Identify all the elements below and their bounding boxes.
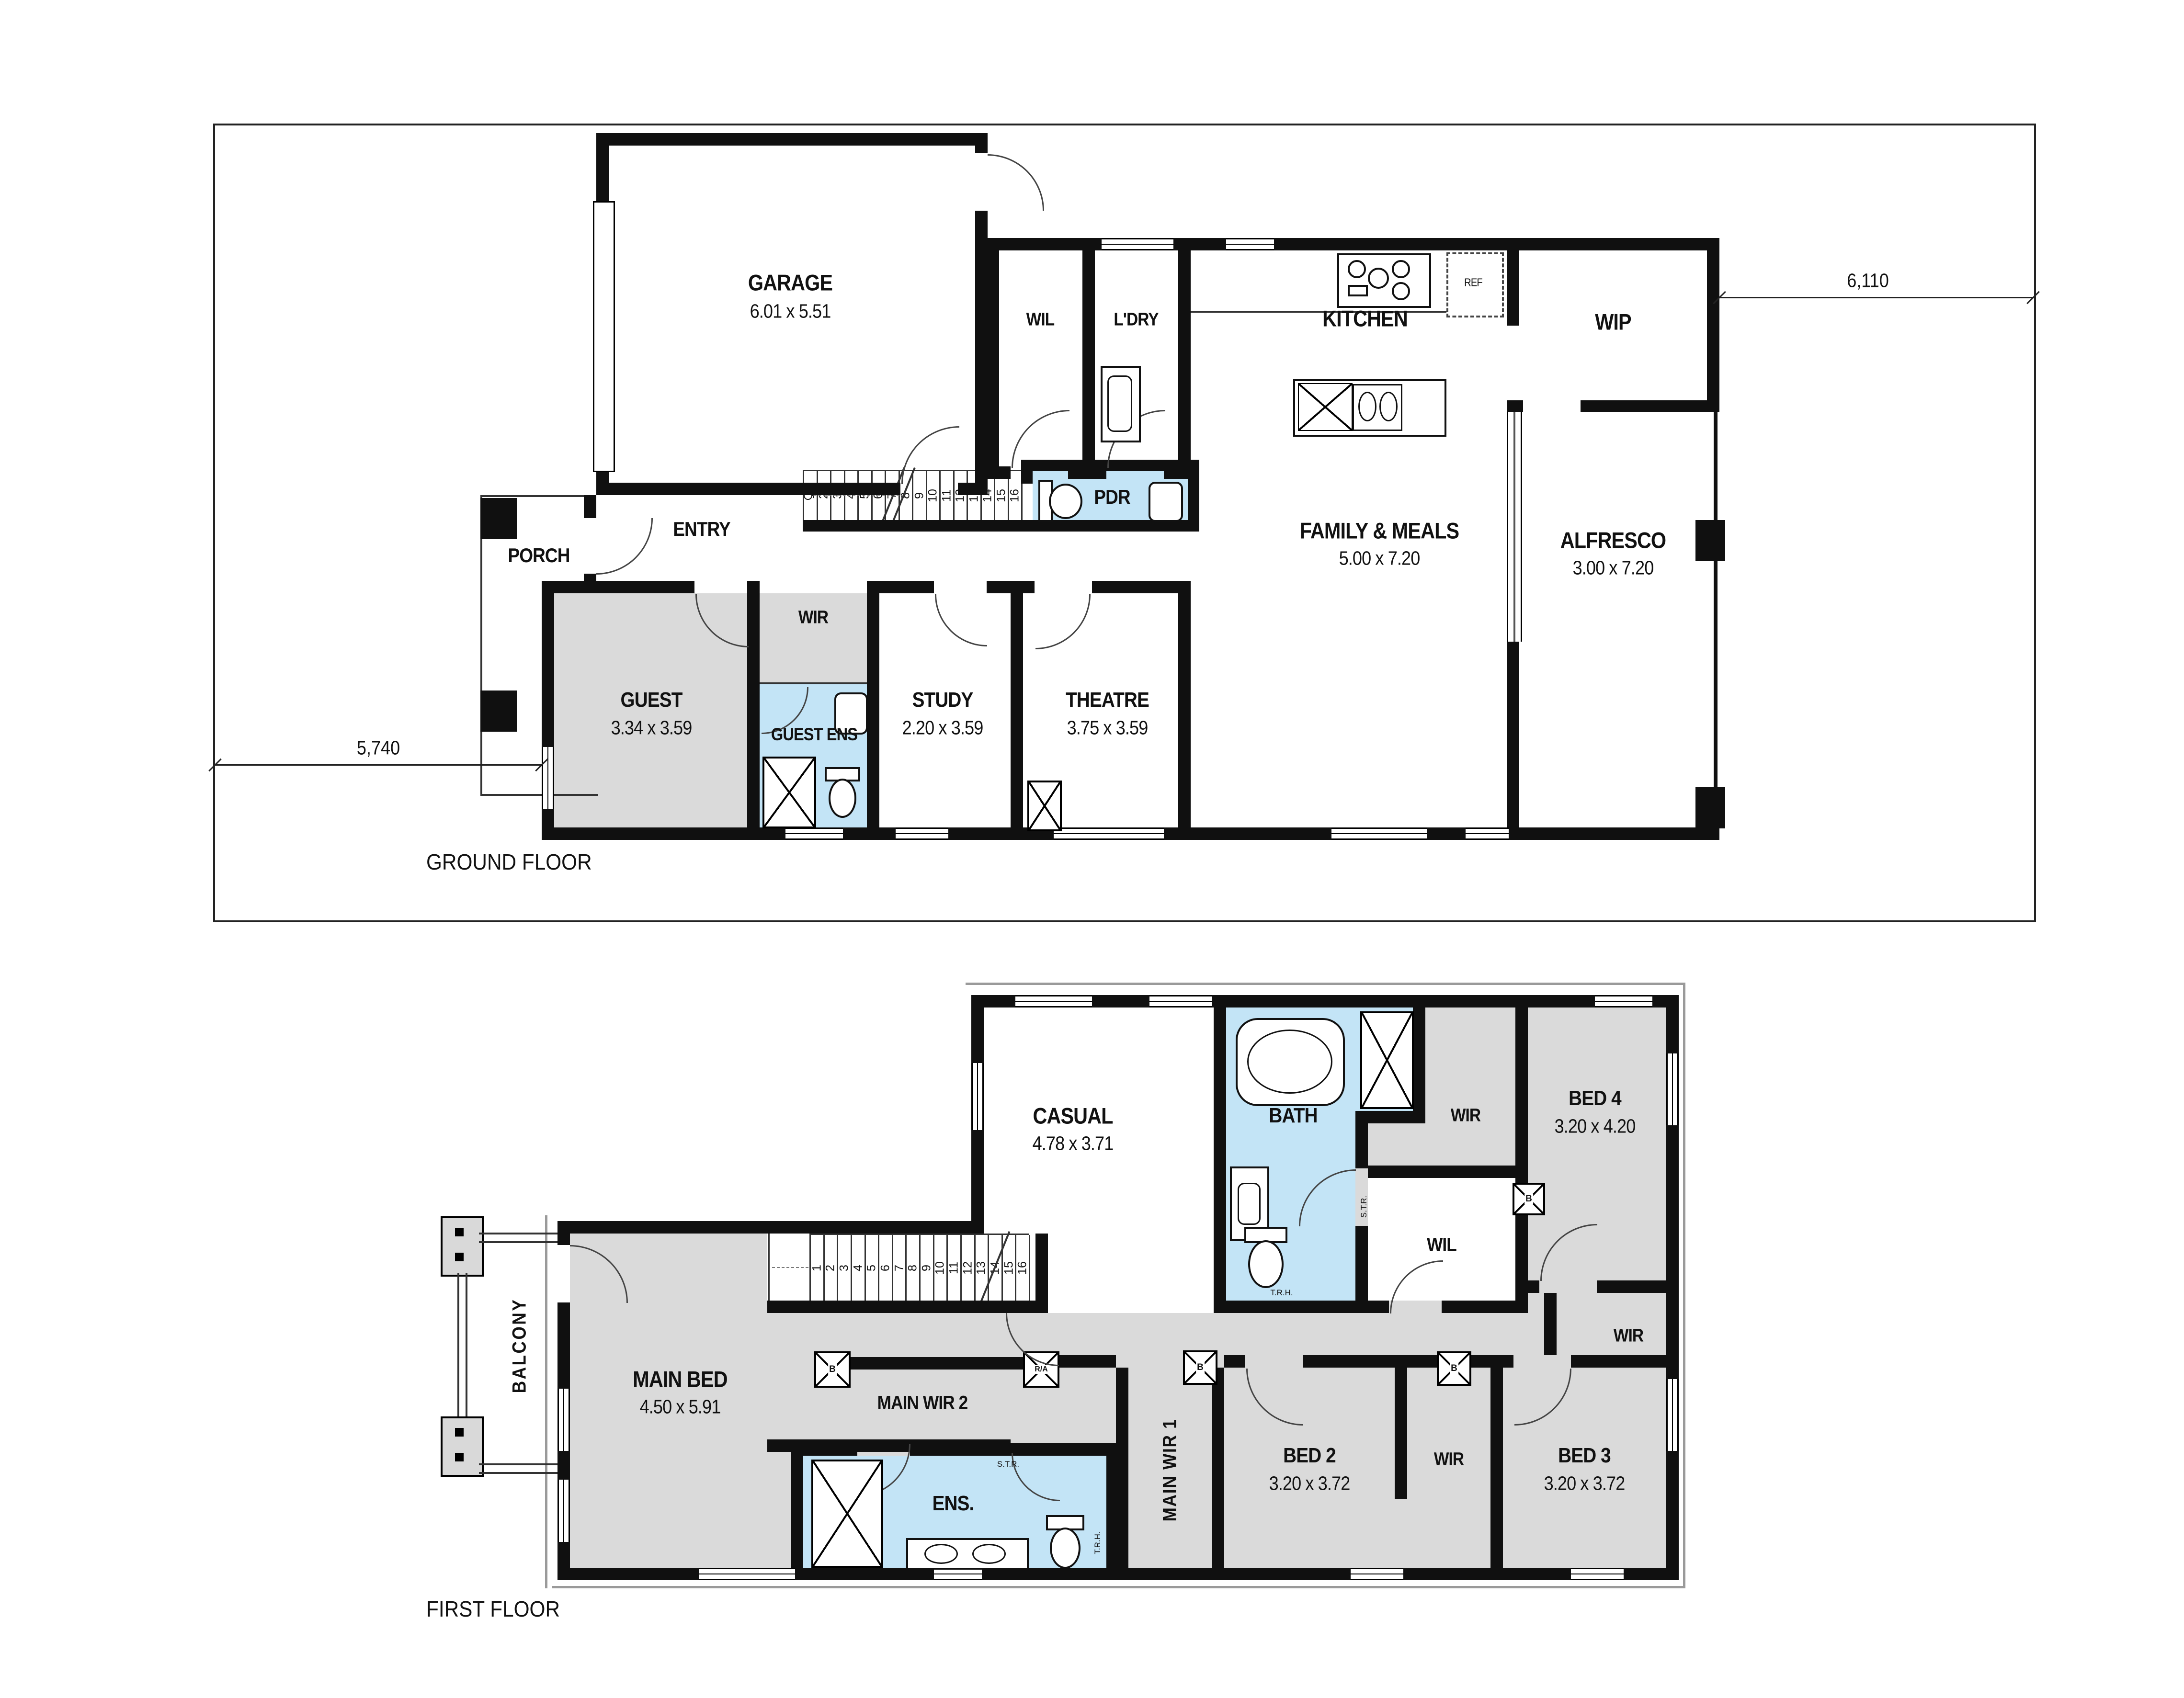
stair-tread: 2 [817, 471, 830, 520]
stair-number: 16 [1016, 1261, 1030, 1275]
stair-tread: 12 [960, 1235, 974, 1301]
stair-landing-line [768, 1234, 770, 1301]
dimension-front: 5,740 [357, 737, 400, 759]
stair-number: 9 [912, 492, 926, 499]
wall [1303, 1355, 1437, 1368]
wall [596, 133, 988, 146]
stair-number: 6 [878, 1265, 892, 1271]
ens-vanity [906, 1538, 1029, 1570]
wall [1490, 1368, 1503, 1568]
stair-number: 11 [947, 1262, 961, 1274]
window [1102, 238, 1173, 250]
window [1666, 1379, 1679, 1451]
room-label-wip: WIP [1595, 309, 1631, 335]
str-label-ens: S.T.R. [997, 1460, 1019, 1469]
guest-ens-toilet [829, 779, 856, 818]
stair-number: 9 [920, 1265, 933, 1271]
wall [1507, 250, 1519, 326]
wall [1544, 1293, 1557, 1355]
stair-tread: 10 [933, 1235, 947, 1301]
window [557, 1389, 570, 1451]
balcony-rail [457, 1273, 459, 1416]
stair-number: 16 [1008, 489, 1022, 502]
floor-title-first: FIRST FLOOR [426, 1596, 560, 1622]
stair-tread: 11 [946, 1235, 960, 1301]
room-label-alfresco: ALFRESCO [1560, 527, 1666, 554]
duct-label: B [828, 1364, 837, 1375]
stair-number: 10 [926, 489, 940, 502]
stair-number: 2 [824, 1265, 838, 1271]
room-label-main-wir2: MAIN WIR 2 [877, 1392, 968, 1414]
stair-tread: 6 [871, 471, 885, 520]
room-label-wir-mid: WIR [1434, 1449, 1464, 1470]
wall [791, 1443, 803, 1568]
room-label-guest-ens: GUEST ENS [771, 724, 857, 745]
wall [975, 133, 988, 153]
trh-label-ens: T.R.H. [1093, 1531, 1103, 1554]
wall [747, 593, 760, 827]
duct-box: B [1183, 1350, 1217, 1385]
room-label-wir-top: WIR [1451, 1106, 1480, 1126]
dimension-line-front [215, 764, 542, 766]
stair-tread: 3 [837, 1235, 851, 1301]
wall [1707, 250, 1719, 400]
staircase-first: 12345678910111213141516 [809, 1235, 1030, 1301]
wall [1212, 1368, 1224, 1568]
duct-box: B [1437, 1351, 1471, 1386]
wall [1214, 995, 1226, 1313]
room-label-theatre: THEATRE [1066, 688, 1149, 712]
guest-ens-shower [762, 757, 816, 828]
stair-landing-dash [772, 1267, 808, 1268]
wall [1355, 1226, 1368, 1301]
porch-outline [480, 794, 598, 796]
stair-tread: 5 [864, 1235, 878, 1301]
room-label-garage: GARAGE [748, 270, 832, 296]
room-label-porch: PORCH [508, 544, 569, 567]
balcony-rail [479, 1463, 557, 1465]
wall [1092, 581, 1191, 593]
window [1226, 238, 1274, 250]
wall [1368, 1166, 1515, 1178]
window [971, 1063, 984, 1130]
porch-pillar [480, 498, 517, 539]
ens-shower [811, 1460, 883, 1568]
wall [1597, 1280, 1666, 1293]
wall [1368, 1301, 1389, 1313]
room-label-wir-right: WIR [1614, 1326, 1643, 1347]
eave-line [552, 1586, 1685, 1588]
room-size-guest: 3.34 x 3.59 [611, 717, 692, 739]
wall [988, 466, 1011, 479]
room-label-main-wir1: MAIN WIR 1 [1160, 1418, 1181, 1521]
wall [1116, 1368, 1128, 1568]
floor-plan-page: 12345678910111213141516 [0, 0, 2184, 1698]
window [557, 1480, 570, 1542]
stair-number: 4 [851, 1265, 865, 1271]
room-label-wil: WIL [1026, 310, 1055, 330]
bath-toilet [1248, 1240, 1284, 1288]
stair-tread: 7 [892, 1235, 906, 1301]
wall [1507, 400, 1523, 412]
stair-tread: 9 [919, 1235, 933, 1301]
room-size-bed4: 3.20 x 4.20 [1555, 1115, 1636, 1138]
window [1666, 1053, 1679, 1125]
room-label-family: FAMILY & MEALS [1300, 518, 1459, 544]
wall [1058, 1355, 1116, 1368]
window [1466, 827, 1509, 840]
wall [958, 483, 975, 495]
duct-box: B [814, 1351, 851, 1388]
stair-tread: 4 [851, 1235, 864, 1301]
floor-title-ground: GROUND FLOOR [426, 849, 592, 875]
duct-label: B [1196, 1362, 1205, 1373]
wall [1011, 581, 1023, 840]
window [1331, 827, 1427, 840]
dimension-line-side [1719, 297, 2033, 298]
alfresco-edge [1714, 400, 1718, 840]
room-size-alfresco: 3.00 x 7.20 [1573, 557, 1654, 579]
alfresco-pillar [1695, 787, 1725, 828]
room-label-guest-wir: WIR [798, 608, 828, 628]
trh-label-bath: T.R.H. [1270, 1288, 1293, 1298]
balcony-post [441, 1416, 484, 1477]
stair-tread: 5 [857, 471, 871, 520]
wall [1082, 250, 1095, 479]
duct-label: B [1450, 1363, 1458, 1374]
room-size-garage: 6.01 x 5.51 [750, 300, 831, 323]
wall [879, 581, 934, 593]
stair-number: 10 [933, 1261, 947, 1275]
room-label-wil-first: WIL [1427, 1234, 1456, 1256]
stair-number: 7 [892, 1265, 906, 1271]
balcony-rail [466, 1273, 467, 1416]
wall [1442, 1301, 1515, 1313]
wall [1413, 1007, 1425, 1111]
room-size-family: 5.00 x 7.20 [1339, 547, 1420, 570]
balcony-rail [479, 1241, 557, 1243]
eave-line [1683, 983, 1685, 1587]
window [896, 827, 948, 840]
wall [747, 581, 760, 593]
window [1595, 995, 1652, 1007]
window [542, 747, 554, 809]
return-air-label: R/A [1034, 1365, 1049, 1374]
fridge-label: REF [1464, 276, 1482, 289]
stair-number: 13 [975, 1261, 989, 1275]
room-label-balcony: BALCONY [509, 1298, 531, 1393]
bath-shower [1360, 1011, 1414, 1109]
room-label-entry: ENTRY [673, 518, 730, 541]
cooktop [1337, 253, 1431, 308]
room-label-bed2: BED 2 [1283, 1444, 1336, 1468]
room-label-casual: CASUAL [1033, 1103, 1113, 1129]
window [699, 1568, 795, 1580]
room-label-pdr: PDR [1094, 486, 1130, 509]
wall [975, 211, 988, 495]
room-size-study: 2.20 x 3.59 [902, 717, 983, 739]
wall [1515, 1007, 1528, 1313]
robe-line [760, 682, 867, 684]
room-size-main-bed: 4.50 x 5.91 [640, 1396, 721, 1418]
structural-pier [1027, 781, 1062, 831]
wall [803, 520, 1199, 532]
porch-outline [480, 495, 596, 497]
stair-tread: 2 [823, 1235, 837, 1301]
stair-number: 11 [940, 489, 954, 502]
wall [1571, 1355, 1666, 1368]
stair-tread: 4 [844, 471, 858, 520]
stair-number: 1 [810, 1265, 824, 1271]
stair-number: 5 [865, 1265, 879, 1271]
bathtub [1236, 1018, 1345, 1106]
stair-number: 3 [838, 1265, 852, 1271]
room-size-bed2: 3.20 x 3.72 [1269, 1472, 1350, 1495]
stair-number: 15 [1002, 1261, 1016, 1275]
room-label-main-bed: MAIN BED [633, 1366, 727, 1392]
balcony-post [441, 1216, 484, 1277]
wall [1224, 1355, 1245, 1368]
window [785, 827, 843, 840]
stair-number: 12 [961, 1261, 975, 1275]
wall [1035, 1234, 1048, 1313]
pdr-basin [1149, 482, 1183, 522]
eave-line [966, 983, 1685, 985]
duct-label: B [1524, 1194, 1533, 1204]
stair-number: 15 [994, 489, 1008, 502]
room-label-ldry: L'DRY [1114, 310, 1158, 330]
wall [1178, 250, 1191, 479]
stair-tread: 6 [878, 1235, 892, 1301]
stair-tread: 16 [1015, 1235, 1029, 1301]
wall [542, 581, 694, 593]
str-label-bath: S.T.R. [1359, 1196, 1369, 1218]
wall [584, 495, 596, 518]
window [1015, 995, 1092, 1007]
kitchen-bench-line [1191, 311, 1446, 313]
porch-outline [480, 495, 482, 796]
wall [1395, 1368, 1407, 1499]
eave-line [545, 1215, 547, 1588]
room-label-bed3: BED 3 [1558, 1444, 1611, 1468]
room-size-casual: 4.78 x 3.71 [1033, 1132, 1114, 1155]
ens-toilet [1050, 1528, 1081, 1569]
wall [1021, 471, 1033, 484]
pdr-toilet [1049, 484, 1082, 519]
balcony-rail [479, 1472, 557, 1474]
dimension-side: 6,110 [1847, 270, 1889, 292]
window [1149, 995, 1212, 1007]
stair-tread: 3 [830, 471, 844, 520]
room-label-bath: BATH [1269, 1104, 1317, 1128]
wall [1581, 400, 1719, 412]
wall [1503, 1355, 1513, 1368]
wall [557, 1221, 984, 1234]
wall [767, 1301, 1048, 1313]
duct-box: B [1513, 1183, 1545, 1215]
wall [596, 483, 900, 495]
room-size-theatre: 3.75 x 3.59 [1067, 717, 1148, 739]
window [1351, 1568, 1403, 1580]
sliding-door [1507, 412, 1522, 642]
window [1054, 827, 1164, 840]
wall [847, 1357, 1023, 1370]
stair-tread: 1 [809, 1235, 823, 1301]
room-label-guest: GUEST [621, 688, 682, 712]
wall [1507, 642, 1519, 840]
room-size-bed3: 3.20 x 3.72 [1544, 1472, 1625, 1495]
room-label-kitchen: KITCHEN [1322, 306, 1408, 332]
kitchen-island [1293, 379, 1446, 437]
wall [1467, 1355, 1503, 1368]
balcony-rail [479, 1233, 557, 1234]
guest-wir-floor [760, 593, 867, 682]
stair-tread: 8 [905, 1235, 919, 1301]
stair-edge-line [809, 1234, 1029, 1235]
wall [1178, 581, 1191, 840]
room-label-ens: ENS. [933, 1492, 974, 1516]
porch-pillar [480, 691, 517, 732]
laundry-trough [1101, 366, 1141, 442]
garage-door [593, 201, 615, 472]
stair-number: 8 [906, 1265, 920, 1271]
room-label-bed4: BED 4 [1569, 1087, 1621, 1110]
wall [584, 574, 596, 593]
wall [867, 581, 879, 840]
room-label-study: STUDY [912, 688, 973, 712]
wall [1355, 1111, 1425, 1123]
window [1571, 1568, 1624, 1580]
wall [557, 1221, 570, 1245]
wall [1214, 1301, 1368, 1313]
wall [988, 238, 1719, 250]
wall [988, 250, 999, 479]
alfresco-pillar [1695, 520, 1725, 561]
wall [1528, 1280, 1539, 1293]
